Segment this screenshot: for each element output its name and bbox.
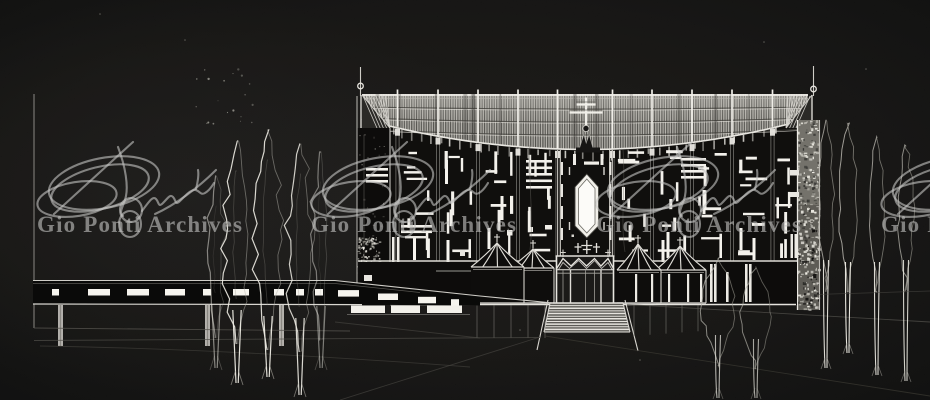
svg-text:Gio Ponti Archives: Gio Ponti Archives	[311, 212, 516, 237]
svg-text:Gio Ponti Archives: Gio Ponti Archives	[596, 212, 801, 237]
svg-text:Gio Ponti Archives: Gio Ponti Archives	[37, 212, 242, 237]
svg-text:Gio Ponti Archives: Gio Ponti Archives	[881, 212, 930, 237]
